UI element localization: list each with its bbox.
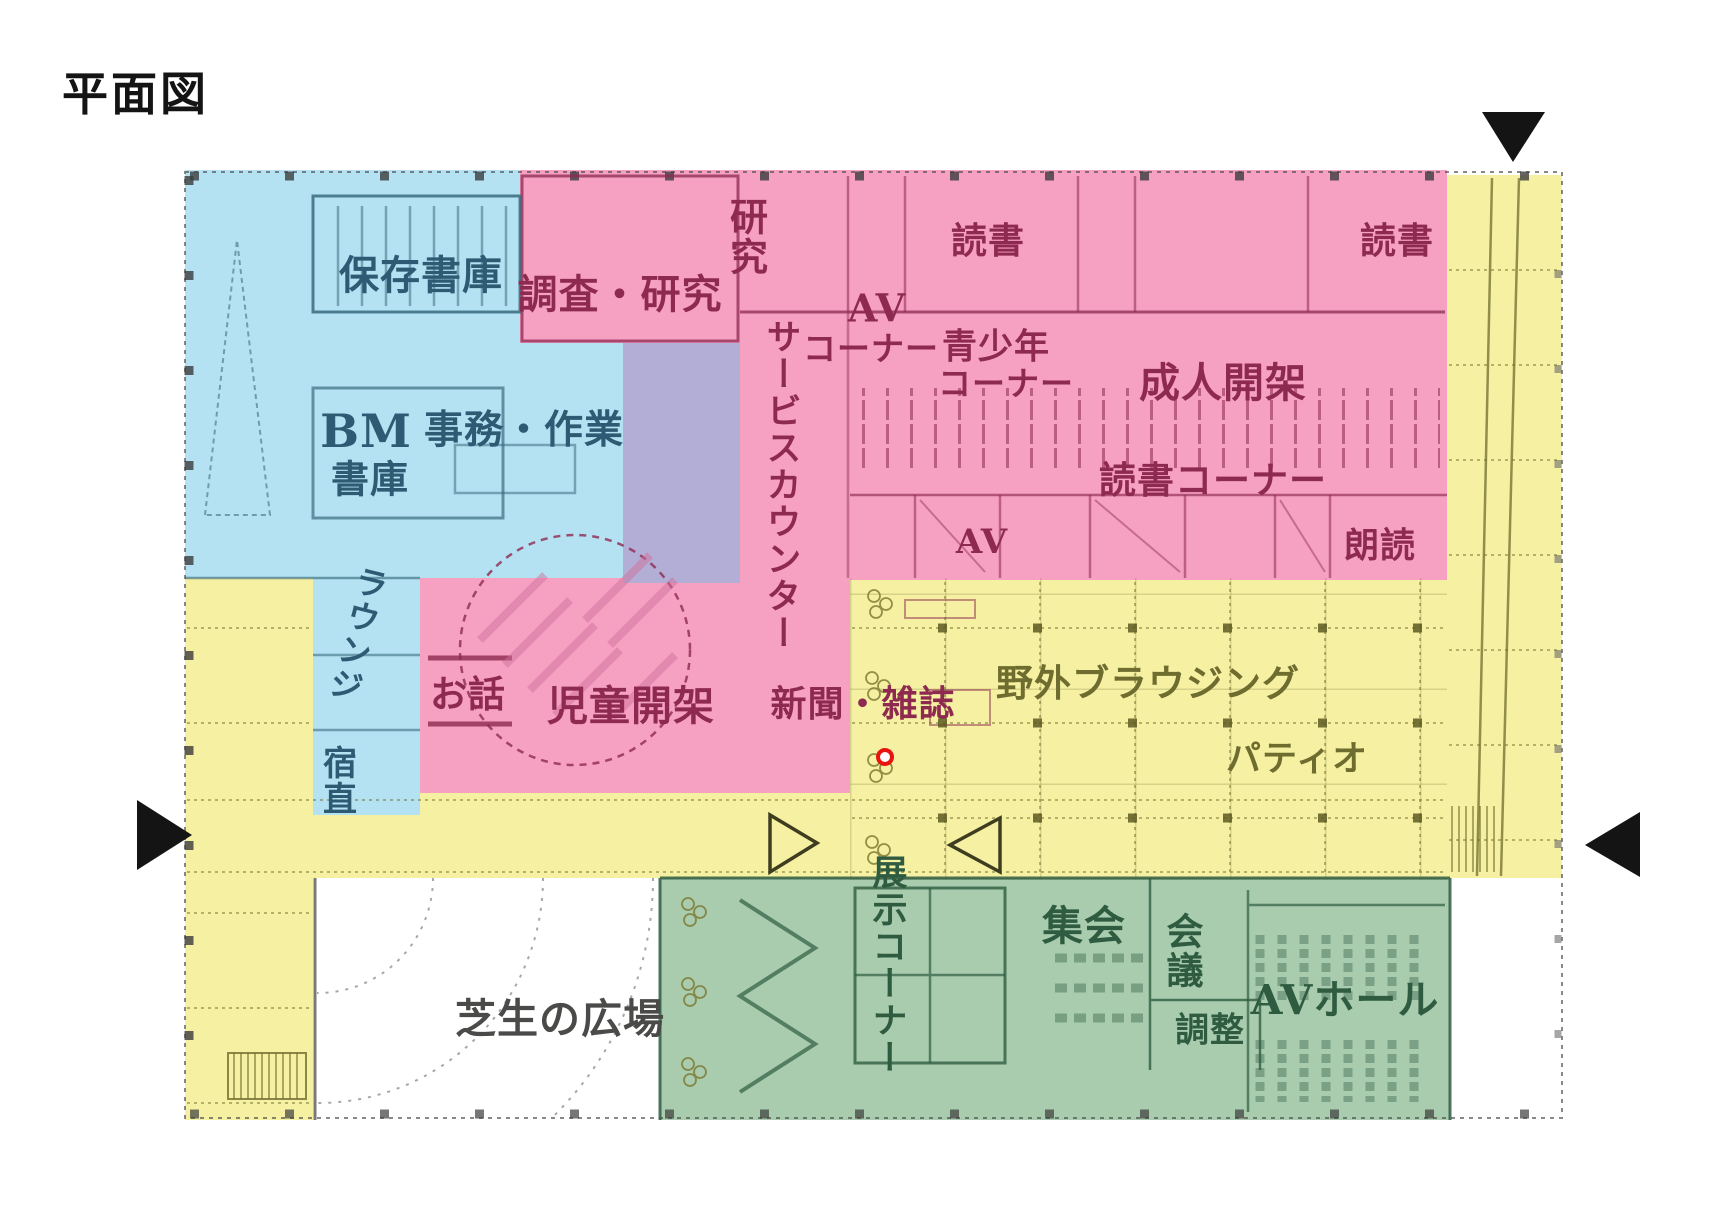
room-label-study: 研究: [719, 197, 774, 277]
room-label-control: 調整: [1175, 1003, 1245, 1052]
room-label-service-counter: サービスカウンター: [756, 319, 807, 652]
arrow-right-icon: [137, 800, 192, 870]
room-label-patio: パティオ: [1226, 731, 1368, 782]
room-label-lawn-plaza: 芝生の広場: [455, 985, 665, 1045]
room-label-exhibit-corner: 展示コーナー: [862, 854, 913, 1076]
room-label-storytime: お話: [430, 664, 506, 718]
arrow-down-icon: [1482, 112, 1545, 162]
room-label-news-magazines: 新聞・雑誌: [770, 675, 955, 727]
zone-main-stacks: [740, 170, 1447, 580]
arrow-left-icon: [1585, 812, 1640, 877]
zone-workroom-lavender: [623, 343, 740, 583]
floor-plan: 平面図: [0, 0, 1724, 1210]
room-label-av-corner-line2: コーナー: [803, 322, 939, 370]
room-label-av-room: AV: [956, 522, 1008, 562]
room-label-recitation: 朗読: [1344, 518, 1416, 569]
room-label-bm-line2: 書庫: [331, 449, 409, 504]
room-label-youth-line2: コーナー: [938, 357, 1074, 405]
room-label-storage-stacks: 保存書庫: [339, 243, 503, 301]
room-label-adult-stacks: 成人開架: [1139, 349, 1307, 409]
room-label-assembly: 集会: [1042, 892, 1126, 952]
zone-right-yellow-ramp: [1447, 175, 1562, 878]
room-label-meeting: 会議: [1155, 912, 1209, 990]
room-label-reading-right: 読書: [1360, 212, 1434, 264]
room-label-children-stacks: 児童開架: [547, 672, 715, 732]
page-title: 平面図: [62, 58, 209, 124]
patio-grid: [850, 578, 1447, 880]
room-label-reading-mid: 読書: [951, 212, 1025, 264]
room-label-av-hall: AVホール: [1251, 966, 1440, 1026]
room-label-outdoor-browsing: 野外ブラウジング: [996, 653, 1300, 707]
room-label-night-duty: 宿直: [313, 745, 362, 817]
room-label-office-work: 事務・作業: [424, 399, 624, 455]
room-label-reading-corner: 読書コーナー: [1099, 450, 1327, 504]
room-label-research: 調査・研究: [518, 262, 723, 320]
